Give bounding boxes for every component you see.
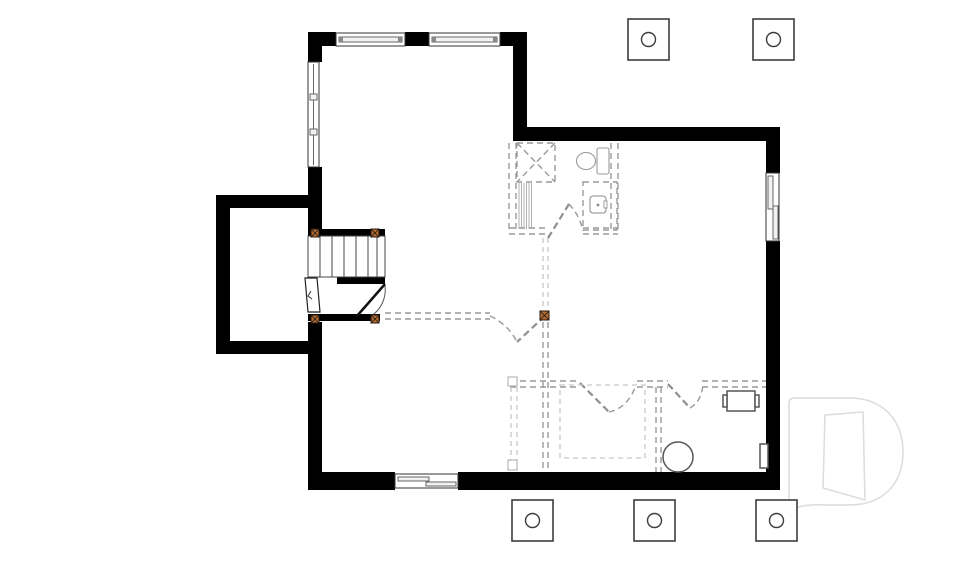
step-wall bbox=[513, 127, 780, 141]
upper-right-wall bbox=[513, 32, 527, 141]
top-window-right bbox=[429, 33, 500, 46]
right-wall-window bbox=[766, 173, 779, 241]
support-post bbox=[371, 315, 379, 323]
vanity-sink bbox=[583, 182, 617, 230]
bumpout-left-wall bbox=[216, 195, 230, 354]
support-post bbox=[311, 229, 319, 237]
shower-base-hatch bbox=[519, 183, 532, 229]
future-closet-outline bbox=[560, 385, 645, 458]
watermark-inner-path bbox=[823, 412, 865, 500]
column-footing bbox=[634, 500, 675, 541]
floor-plan-canvas bbox=[0, 0, 960, 569]
left-wall-segment bbox=[308, 32, 322, 62]
staircase bbox=[305, 236, 385, 316]
watermark-outer-path bbox=[789, 398, 903, 511]
proposed-door-leaf bbox=[668, 384, 690, 408]
column-footing bbox=[512, 500, 553, 541]
bathroom-door-arc bbox=[569, 204, 583, 231]
support-post bbox=[540, 311, 549, 320]
toilet bbox=[577, 148, 610, 174]
proposed-partition-walls bbox=[385, 238, 766, 472]
proposed-door-arc bbox=[690, 385, 703, 408]
proposed-door-arc bbox=[490, 316, 517, 342]
floor-plan-drawing bbox=[0, 0, 960, 569]
left-wall-window bbox=[308, 62, 319, 167]
proposed-door-arc bbox=[609, 385, 636, 412]
proposed-bathroom bbox=[509, 143, 618, 238]
cellar-door bbox=[305, 278, 320, 312]
brand-watermark-d-logo bbox=[789, 398, 903, 511]
bumpout-bottom-wall bbox=[216, 341, 310, 354]
door-jamb bbox=[508, 460, 517, 470]
column-footing bbox=[756, 500, 797, 541]
bottom-wall-segment bbox=[458, 472, 780, 490]
column-footing bbox=[753, 19, 794, 60]
top-wall-segment bbox=[405, 32, 429, 46]
bumpout-top-wall bbox=[216, 195, 310, 208]
door-jamb bbox=[508, 377, 517, 386]
future-elements bbox=[508, 377, 645, 470]
under-stair-wall bbox=[337, 277, 385, 284]
left-wall-segment bbox=[308, 167, 322, 229]
left-wall-segment bbox=[308, 322, 322, 472]
proposed-door-leaf bbox=[580, 383, 609, 412]
shower bbox=[517, 143, 555, 182]
exterior-walls bbox=[216, 32, 780, 490]
right-wall-segment bbox=[766, 127, 780, 173]
bathroom-door-leaf bbox=[548, 204, 569, 238]
top-window-left bbox=[336, 33, 405, 46]
footings-layer bbox=[512, 19, 797, 541]
equipment bbox=[663, 391, 768, 472]
bottom-wall-window bbox=[395, 474, 458, 488]
electrical-panel bbox=[760, 444, 768, 468]
support-post bbox=[371, 229, 379, 237]
bottom-wall-segment bbox=[308, 472, 395, 490]
stair-door bbox=[357, 284, 385, 316]
furnace bbox=[723, 391, 759, 411]
support-post bbox=[311, 315, 319, 323]
column-footing bbox=[628, 19, 669, 60]
sump-pit bbox=[663, 442, 693, 472]
